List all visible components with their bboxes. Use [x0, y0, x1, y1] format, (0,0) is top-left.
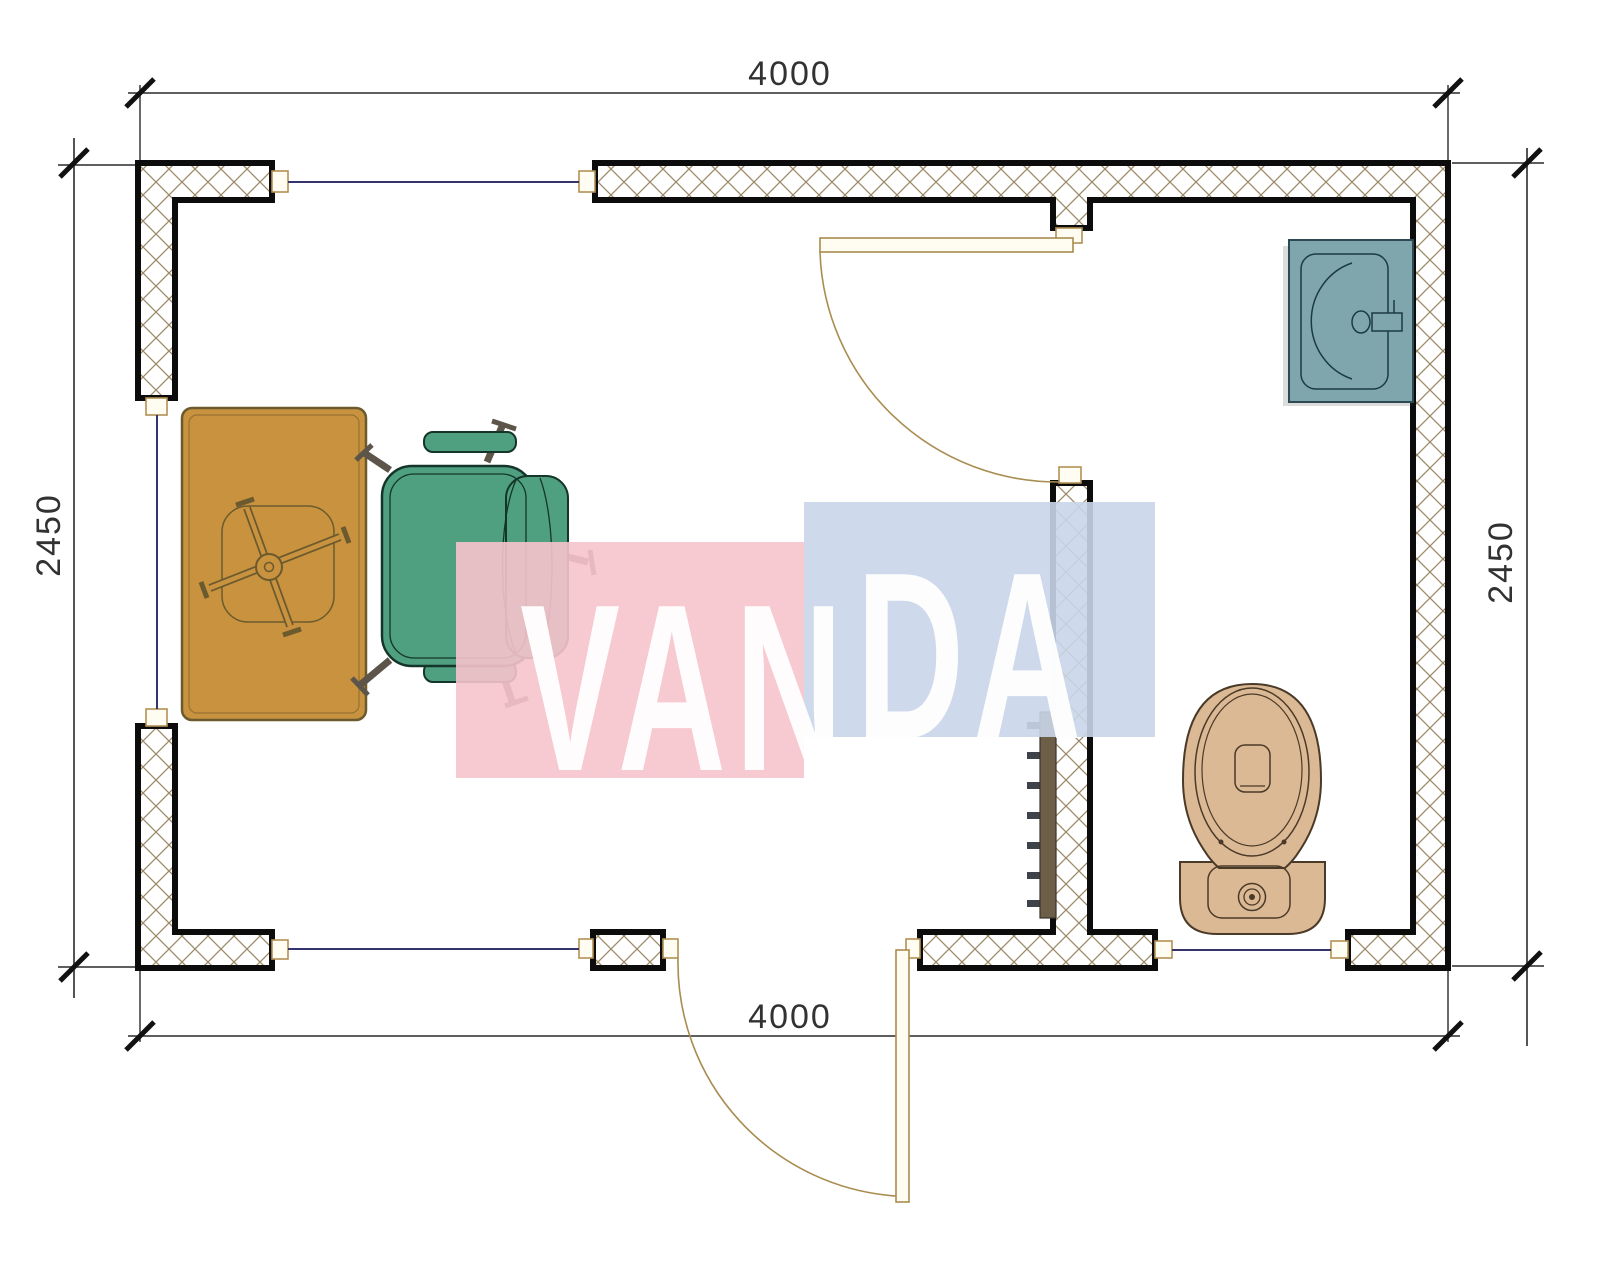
frame-cap [663, 939, 678, 958]
bottom-width-label: 4000 [748, 998, 832, 1036]
entrance-door-leaf [896, 950, 909, 1202]
radiator-fin [1027, 872, 1041, 879]
wall-top-left-corner [138, 163, 272, 398]
frame-cap [146, 398, 167, 415]
bathroom-door-leaf [820, 238, 1073, 252]
floor-plan-canvas: 4000 4000 2450 2450 VAN DA [0, 0, 1600, 1280]
wall-bottom-left-corner [138, 726, 272, 968]
wall-bottom-pier [593, 932, 663, 968]
frame-cap [1059, 467, 1081, 483]
radiator-fin [1027, 812, 1041, 819]
bathroom-door-swing-arc [820, 252, 1060, 482]
bathroom-door [820, 238, 1073, 482]
sink-drain [1352, 311, 1370, 333]
sink-faucet [1372, 313, 1402, 331]
frame-cap [272, 171, 288, 192]
chair-armrest-top [424, 432, 516, 452]
watermark-text-part2: DA [856, 524, 1090, 790]
base-hub [256, 554, 282, 580]
entrance-door [678, 950, 909, 1202]
frame-cap [1155, 941, 1172, 958]
watermark: VAN DA [456, 502, 1155, 821]
toilet [1180, 684, 1325, 934]
sink [1283, 240, 1413, 406]
radiator-fin [1027, 900, 1041, 907]
frame-cap [579, 939, 593, 958]
watermark-text-part1: VAN [520, 556, 852, 822]
radiator-fin [1027, 842, 1041, 849]
floor-plan-drawing: 4000 4000 2450 2450 VAN DA [0, 0, 1600, 1280]
frame-cap [272, 940, 288, 959]
frame-cap [1331, 941, 1348, 958]
desk [182, 408, 366, 720]
toilet-button-center [1249, 894, 1255, 900]
entrance-door-swing-arc [678, 958, 896, 1196]
toilet-bolt-left [1219, 840, 1224, 845]
top-width-label: 4000 [748, 55, 832, 93]
right-height-label: 2450 [1482, 520, 1520, 604]
toilet-flush-opening [1235, 745, 1270, 792]
left-height-label: 2450 [30, 493, 68, 577]
frame-cap [579, 171, 595, 192]
frame-cap [146, 709, 167, 726]
toilet-bolt-right [1282, 840, 1287, 845]
